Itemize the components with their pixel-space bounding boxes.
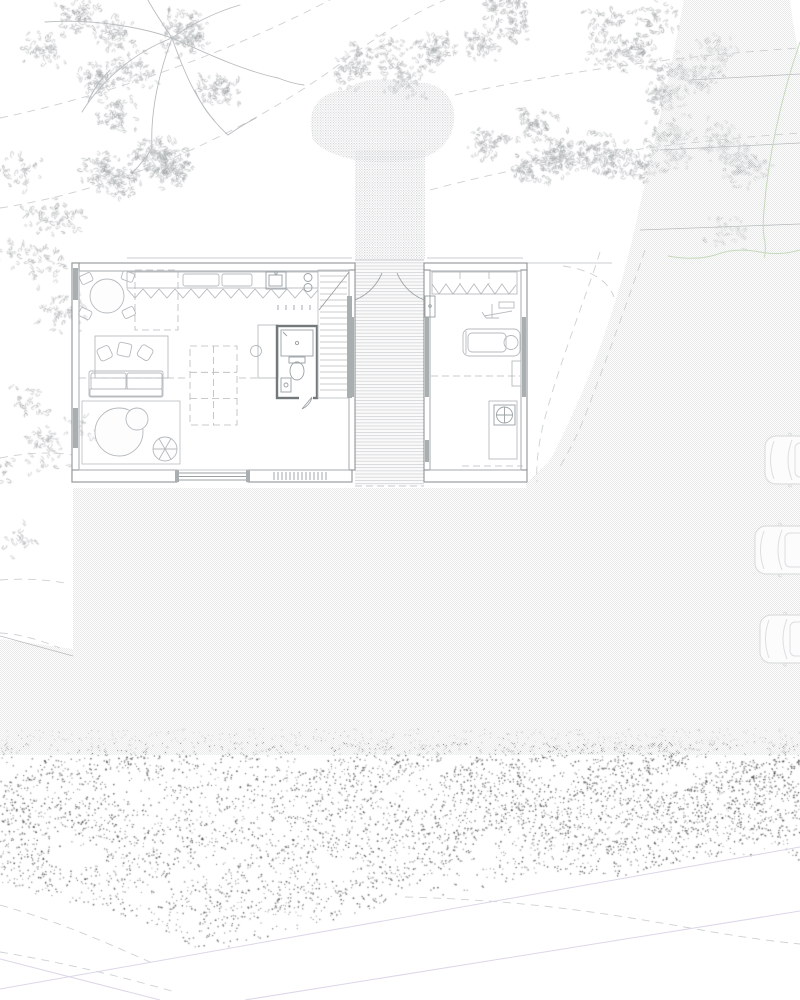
car	[755, 523, 800, 577]
kitchen-sink	[266, 272, 286, 289]
gravel-strip	[355, 150, 425, 260]
left-wing	[72, 263, 355, 482]
interior-face	[430, 271, 521, 470]
side-table	[512, 361, 521, 386]
utensil-hooks	[278, 305, 310, 310]
south-wall	[424, 470, 527, 482]
dining-table	[90, 279, 124, 313]
plan-drawing	[0, 0, 800, 1000]
cooktop-burners	[304, 274, 312, 292]
spoke-table	[153, 437, 177, 461]
south-sliding-door	[175, 470, 250, 482]
sofa	[89, 371, 163, 397]
cushion	[136, 344, 154, 362]
gate-swing-arc	[563, 266, 614, 297]
site-plan	[0, 0, 800, 1000]
south-wall-east	[248, 470, 352, 482]
desk	[251, 325, 279, 378]
car	[760, 612, 800, 666]
toilet	[289, 357, 305, 380]
north-wall	[424, 263, 527, 271]
gravel-path	[311, 79, 455, 260]
stair-rail	[347, 296, 352, 398]
boundary-lines	[0, 847, 800, 1000]
north-wall	[72, 263, 355, 271]
living-area	[82, 336, 180, 464]
stool	[251, 346, 262, 357]
equipment-desk	[489, 401, 517, 459]
gravel-landing	[311, 79, 455, 162]
treadmill	[463, 329, 520, 356]
cushion	[117, 342, 132, 357]
south-wall-west	[72, 470, 177, 482]
rooflight-grid	[190, 346, 237, 425]
car	[765, 433, 800, 487]
stair-treads	[320, 276, 347, 390]
breezeway-deck	[350, 260, 430, 486]
chair	[78, 307, 93, 320]
building	[72, 258, 614, 486]
rug	[95, 336, 168, 378]
tree-branches	[45, 0, 304, 172]
skylight-outline	[135, 270, 178, 330]
wash-basin	[281, 378, 291, 392]
cushion	[96, 345, 113, 362]
staircase	[318, 270, 352, 398]
chair	[121, 306, 136, 319]
kitchen-counter	[127, 272, 318, 310]
wardrobe	[432, 272, 517, 294]
fan-unit	[494, 405, 515, 425]
right-wing	[424, 263, 527, 482]
counter-zigzag-edge	[127, 289, 318, 298]
stair-break-line	[319, 272, 349, 310]
coffee-table	[126, 408, 148, 430]
exercise-machine	[482, 302, 514, 318]
bathroom	[277, 326, 317, 409]
chair	[79, 272, 94, 285]
shower	[281, 330, 313, 356]
